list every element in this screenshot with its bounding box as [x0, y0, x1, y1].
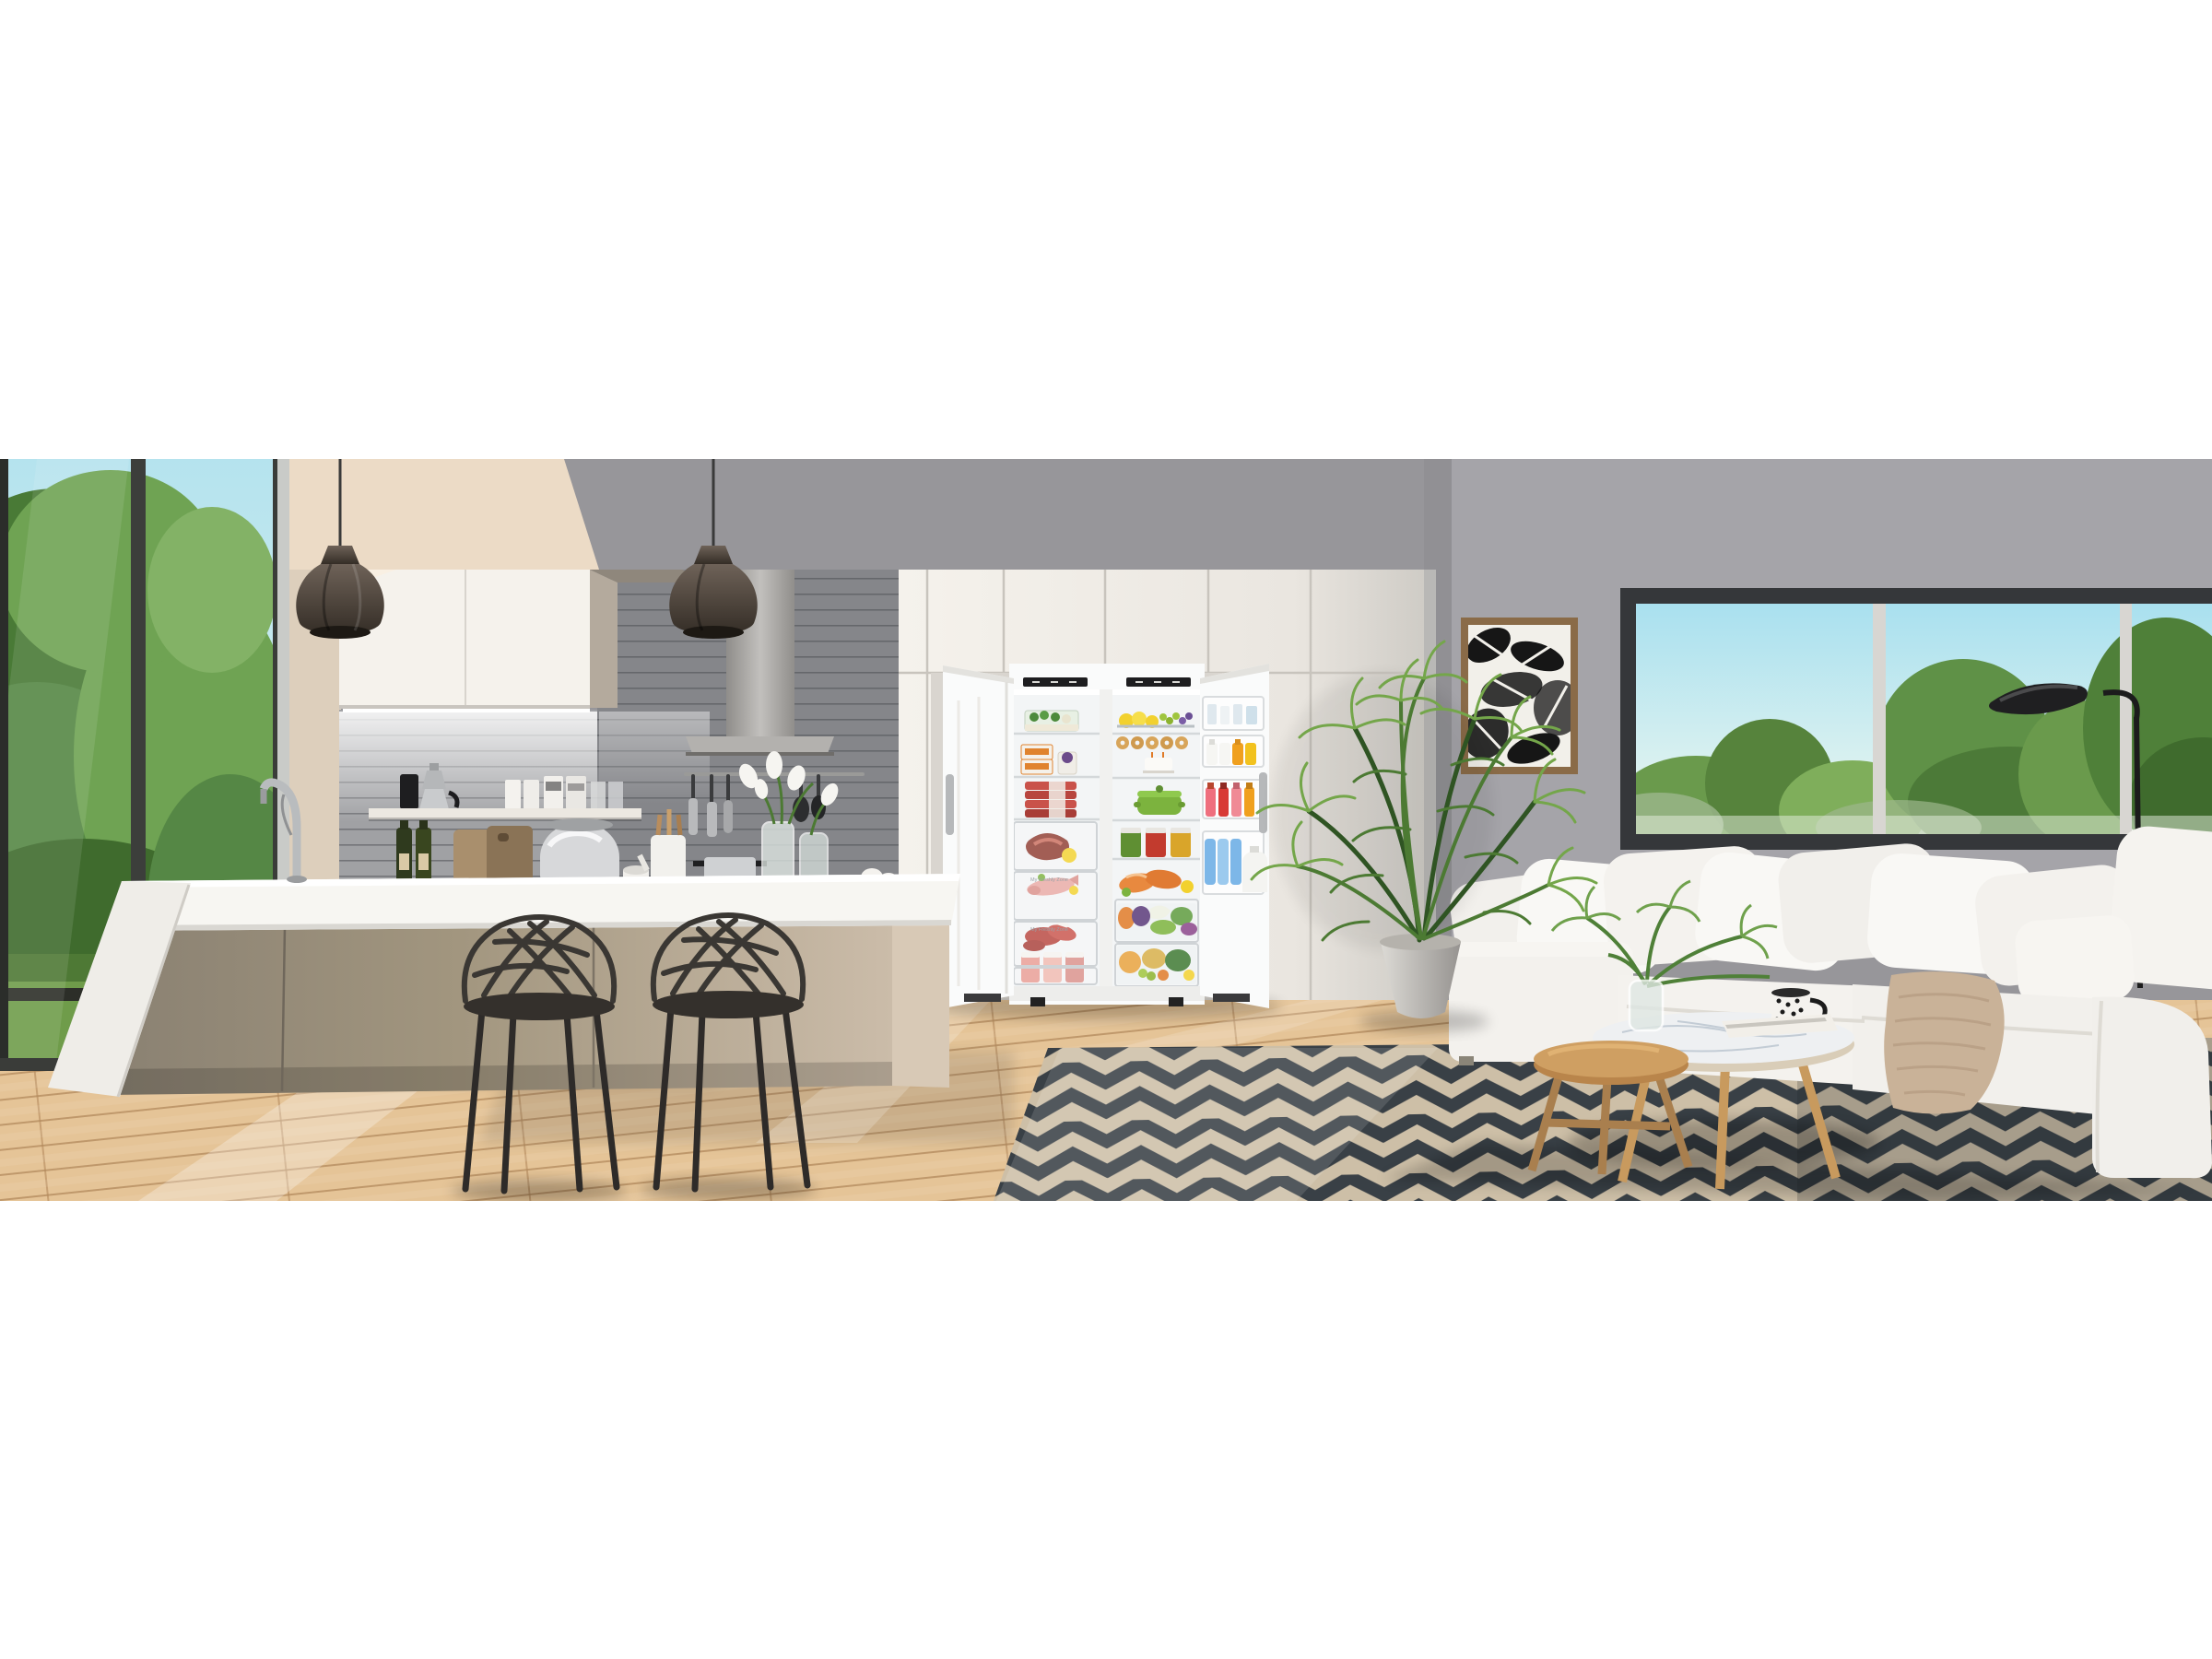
- freezer-door-handle: [946, 774, 954, 835]
- photo-band: My Freshly Zone My Freshly Zone: [0, 459, 2212, 1217]
- photo-page: My Freshly Zone My Freshly Zone: [0, 0, 2212, 1659]
- living-window: [1594, 588, 2212, 866]
- fridge-door-open: [1200, 664, 1269, 1008]
- cabinet-side-face: [590, 570, 618, 708]
- door-bins: [1203, 697, 1267, 894]
- stool-shadow-2: [641, 1178, 816, 1200]
- glass-tumbler: [591, 782, 606, 809]
- center-mullion: [1100, 689, 1112, 994]
- donut-row: [1116, 736, 1188, 749]
- white-mug: [505, 780, 521, 809]
- oil-label: [399, 853, 409, 870]
- sofa-foot: [1459, 1056, 1474, 1065]
- window-mullion-1: [1873, 604, 1886, 834]
- freezer-drawer-label-2: My Freshly Zone: [1030, 927, 1068, 933]
- pillow-small: [2014, 914, 2136, 1007]
- faucet-base: [287, 876, 307, 883]
- pattern-mug: [544, 776, 563, 809]
- glass-tumbler-2: [608, 782, 623, 809]
- mug-pattern: [546, 782, 561, 791]
- white-mug-2: [524, 780, 539, 809]
- right-arm-section: [2092, 997, 2212, 1179]
- fridge-door-hinge: [1213, 994, 1250, 1002]
- interior-photo: My Freshly Zone My Freshly Zone: [0, 0, 2212, 1659]
- milk-jug: [1242, 852, 1267, 892]
- pickle-jars: [1121, 828, 1191, 857]
- fridge-foot-left: [1030, 997, 1045, 1006]
- ladle: [724, 800, 733, 833]
- pattern-mug-2: [566, 776, 586, 809]
- freezer-door-hinge: [964, 994, 1001, 1002]
- freezer-drawer-fronts: [1014, 822, 1097, 984]
- freezer-light: [1011, 689, 1100, 695]
- cabinet-bottom-edge: [339, 705, 590, 709]
- fridge-foot-right: [1169, 997, 1183, 1006]
- stool-seat: [464, 993, 615, 1020]
- left-window-frame-left: [0, 459, 8, 1069]
- fridge-light: [1112, 689, 1200, 695]
- oil-label-2: [418, 853, 429, 870]
- table-vase: [1630, 981, 1663, 1030]
- fridge-drawer-fronts: [1115, 900, 1198, 986]
- board-handle-hole: [498, 833, 509, 841]
- freezer-door-open: [943, 665, 1014, 1008]
- stool-shadow-1: [452, 1180, 627, 1202]
- freezer-drawer-label-1: My Freshly Zone: [1030, 877, 1068, 883]
- spatula: [688, 798, 698, 835]
- black-jar: [400, 774, 418, 809]
- fridge-interior: [1112, 689, 1200, 986]
- turner: [707, 802, 717, 837]
- window-mullion-2: [2120, 604, 2132, 834]
- door-bin-water: [1205, 839, 1267, 892]
- freezer-interior: My Freshly Zone My Freshly Zone: [1011, 689, 1100, 986]
- hood-canopy-edge: [686, 752, 834, 756]
- fridge-freezer-pair: My Freshly Zone My Freshly Zone: [931, 664, 1281, 1019]
- cabinet-seam: [465, 570, 466, 708]
- stool-seat-2: [653, 991, 804, 1018]
- mug-pattern-2: [568, 783, 584, 791]
- fridge-door-handle: [1259, 772, 1267, 833]
